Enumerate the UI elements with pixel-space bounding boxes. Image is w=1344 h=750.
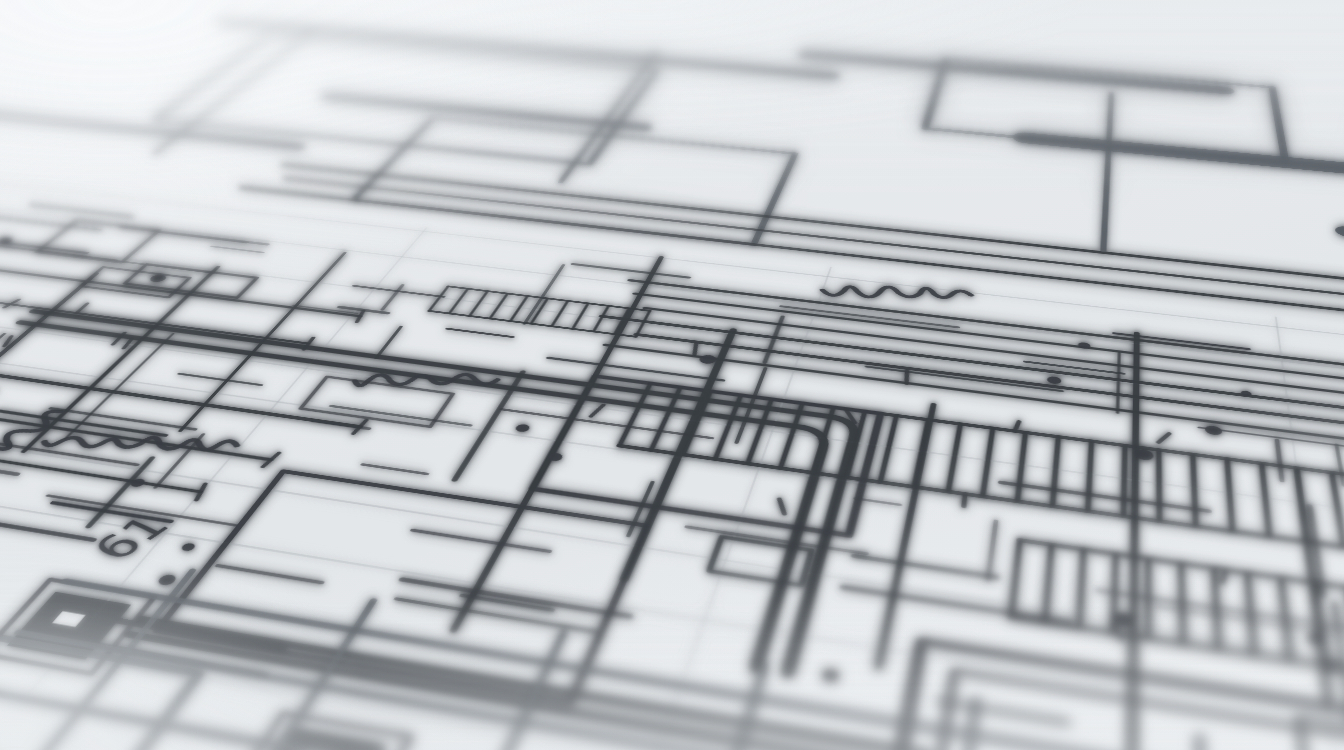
- blueprint-linework: 61: [0, 0, 1344, 750]
- focus-layer-sharp: 61: [0, 0, 1344, 750]
- blueprint-photo: 61 61 61 61 61 Macro photo of an archite…: [0, 0, 1344, 750]
- blueprint-plane: 61: [0, 0, 1344, 750]
